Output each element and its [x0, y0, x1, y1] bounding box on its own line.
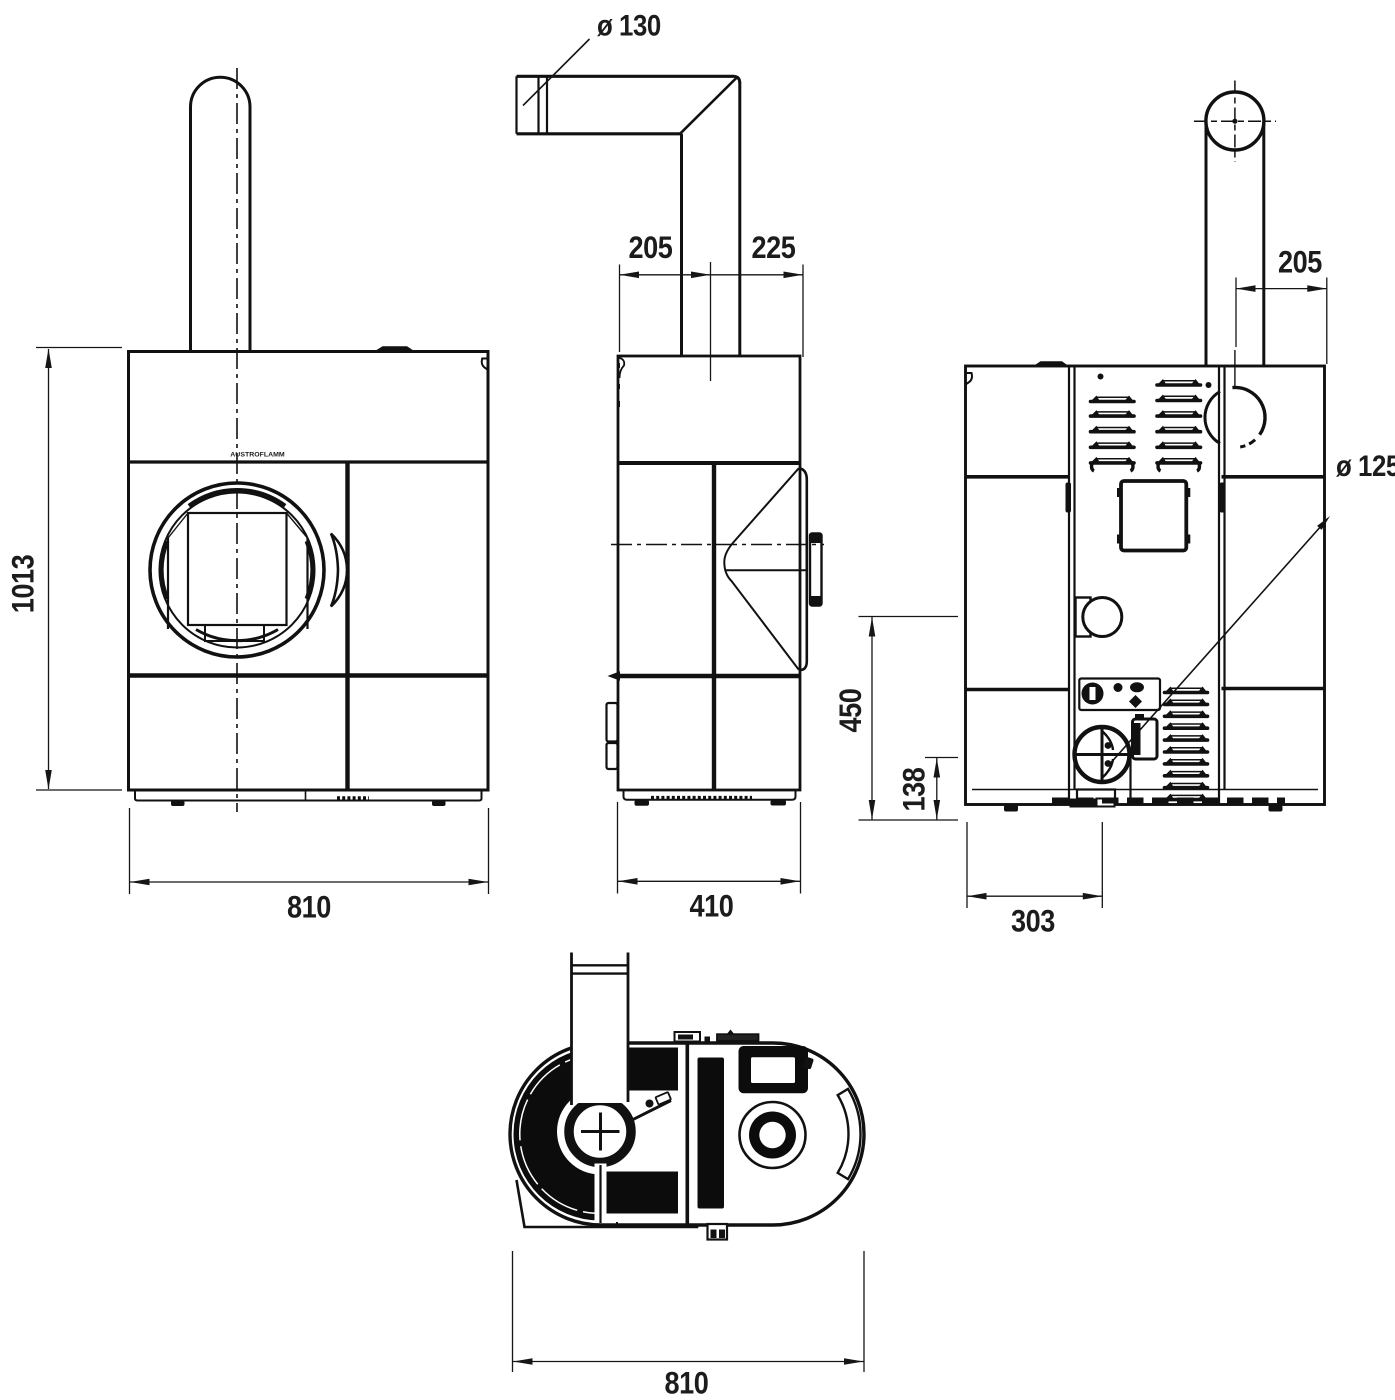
svg-text:205: 205 — [629, 230, 673, 265]
svg-text:225: 225 — [752, 230, 796, 265]
svg-text:410: 410 — [689, 889, 733, 924]
svg-text:450: 450 — [833, 688, 868, 732]
svg-text:810: 810 — [665, 1366, 709, 1400]
svg-text:138: 138 — [897, 767, 932, 811]
svg-text:205: 205 — [1278, 245, 1322, 280]
svg-text:AUSTROFLAMM: AUSTROFLAMM — [230, 452, 285, 459]
svg-text:810: 810 — [287, 890, 331, 925]
svg-text:ø 130: ø 130 — [597, 9, 661, 42]
svg-text:303: 303 — [1011, 904, 1055, 939]
svg-text:ø 125: ø 125 — [1336, 449, 1395, 482]
svg-text:1013: 1013 — [6, 555, 41, 614]
